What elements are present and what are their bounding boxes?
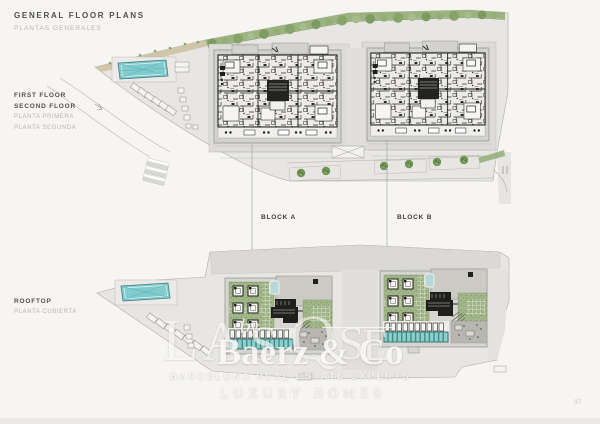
label-second-floor: SECOND FLOOR (14, 103, 76, 110)
page-number: 37 (574, 399, 581, 406)
rooftop-communal-pool (115, 280, 177, 305)
page-subtitle: PLANTAS GENERALES (14, 25, 102, 32)
brochure-page: GENERAL FLOOR PLANS PLANTAS GENERALES FI… (0, 0, 600, 424)
label-planta-primera: PLANTA PRIMERA (14, 114, 74, 120)
rooftop-block-a (225, 276, 332, 360)
rooftop-block-b (380, 269, 487, 353)
page-title: GENERAL FLOOR PLANS (14, 11, 145, 20)
rooftop-site-plan (97, 245, 509, 380)
label-block-a: BLOCK A (261, 214, 296, 221)
label-block-b: BLOCK B (397, 214, 432, 221)
page-bottom-strip (0, 418, 600, 424)
label-rooftop: ROOFTOP (14, 298, 52, 305)
steps (142, 158, 169, 186)
building-block-b (367, 41, 489, 141)
upper-site-plan (47, 10, 511, 204)
label-planta-segunda: PLANTA SEGUNDA (14, 125, 76, 131)
floor-plans-drawing (0, 0, 600, 424)
label-planta-cubierta: PLANTA CUBIERTA (14, 309, 77, 315)
label-first-floor: FIRST FLOOR (14, 92, 66, 99)
building-block-a (214, 43, 341, 143)
